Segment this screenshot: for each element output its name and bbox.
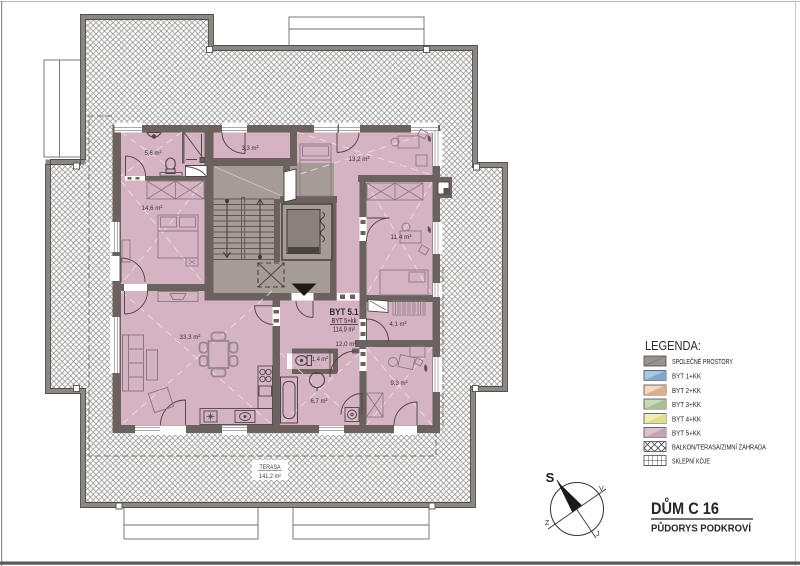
svg-text:SPOLEČNÉ PROSTORY: SPOLEČNÉ PROSTORY	[672, 357, 733, 366]
svg-text:TERASA: TERASA	[260, 464, 282, 471]
svg-text:14,6 m²: 14,6 m²	[142, 205, 164, 212]
svg-text:114,9 m²: 114,9 m²	[333, 325, 355, 334]
svg-text:1,4 m²: 1,4 m²	[312, 356, 329, 363]
svg-text:BYT 2+KK: BYT 2+KK	[672, 388, 701, 395]
svg-text:12,0 m²: 12,0 m²	[336, 341, 358, 348]
svg-text:PŮDORYS PODKROVÍ: PŮDORYS PODKROVÍ	[651, 521, 752, 535]
svg-text:LEGENDA:: LEGENDA:	[645, 339, 701, 353]
svg-text:141,2 m²: 141,2 m²	[259, 473, 282, 480]
svg-text:13,2 m²: 13,2 m²	[349, 156, 371, 163]
svg-text:3,3 m²: 3,3 m²	[242, 145, 260, 152]
svg-text:BALKON/TERASA/ZIMNÍ ZAHRADA: BALKON/TERASA/ZIMNÍ ZAHRADA	[672, 443, 766, 452]
svg-text:4,1 m²: 4,1 m²	[390, 321, 408, 328]
svg-text:S: S	[546, 470, 555, 485]
svg-text:BYT 3+KK: BYT 3+KK	[672, 402, 701, 409]
svg-text:BYT 1+KK: BYT 1+KK	[672, 374, 701, 381]
svg-text:J: J	[596, 531, 600, 538]
svg-text:Z: Z	[545, 520, 550, 527]
svg-text:5,6 m²: 5,6 m²	[145, 150, 163, 157]
svg-text:SKLEPNÍ KÓJE: SKLEPNÍ KÓJE	[672, 457, 710, 466]
svg-text:BYT 4+KK: BYT 4+KK	[672, 417, 701, 424]
svg-text:V: V	[599, 486, 604, 493]
svg-text:33,3 m²: 33,3 m²	[180, 334, 202, 341]
svg-text:9,3 m²: 9,3 m²	[391, 380, 409, 387]
svg-text:6,7 m²: 6,7 m²	[311, 398, 329, 405]
svg-text:11,4 m²: 11,4 m²	[391, 234, 413, 241]
svg-text:BYT 5+KK: BYT 5+KK	[672, 431, 701, 438]
svg-text:DŮM C 16: DŮM C 16	[651, 498, 719, 518]
